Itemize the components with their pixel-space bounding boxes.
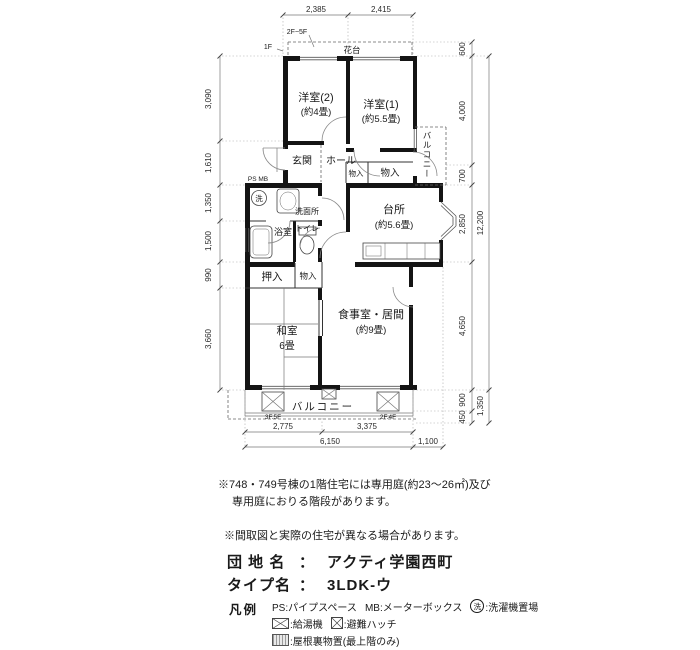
dim-bottom-2: 3,375 [357, 422, 378, 431]
room-label-balcony-main: バルコニー [292, 401, 354, 413]
attic-storage-legend-icon [272, 634, 289, 646]
type-separator: ： [299, 577, 315, 594]
dim-right-outer-1: 12,200 [476, 210, 485, 235]
legend-heater-label: :給湯機 [290, 616, 323, 631]
mark-hatch-left: 3F.5F [265, 414, 281, 421]
room-label-flower-stand: 花台 [343, 45, 360, 55]
bay-window [441, 202, 456, 240]
room-label-washroom: 洗面所 [295, 206, 319, 216]
room-area-kitchen: (約5.6畳) [375, 219, 414, 231]
escape-hatch-right-icon [377, 392, 399, 411]
dim-right-7: 450 [458, 410, 467, 424]
dim-right-1: 600 [458, 42, 467, 56]
type-name-value: 3LDK-ウ [327, 577, 392, 594]
room-label-closet-hall: 物入 [380, 167, 400, 179]
legend-hatch-label: :避難ハッチ [344, 616, 397, 631]
room-label-bathroom: 浴室 [274, 226, 292, 237]
dim-left-5: 990 [204, 268, 213, 282]
room-area-western2: (約4畳) [301, 106, 332, 118]
estate-name-value: アクティ学園西町 [327, 554, 453, 571]
room-area-western1: (約5.5畳) [362, 113, 401, 125]
legend-mb: MB:メーターボックス [365, 599, 462, 614]
dim-right-outer-2: 1,350 [476, 395, 485, 416]
room-label-balcony-side: バルコニー [421, 131, 433, 179]
room-area-japanese: 6畳 [279, 340, 295, 352]
dim-left-3: 1,350 [204, 192, 213, 213]
room-label-toilet: トイレ [295, 224, 319, 233]
type-name-row: タイプ名：3LDK-ウ [227, 574, 392, 595]
room-label-western2: 洋室(2) [298, 90, 333, 104]
escape-hatch-legend-icon [331, 617, 343, 629]
room-label-living: 食事室・居間 [338, 307, 404, 321]
legend-ps: PS:パイプスペース [272, 599, 357, 614]
estate-name-label: 団 地 名 [227, 551, 293, 572]
dim-right-6: 900 [458, 393, 467, 407]
dim-right-5: 4,650 [458, 315, 467, 336]
dim-left-2: 1,610 [204, 152, 213, 173]
dim-bottom-1: 2,775 [273, 422, 294, 431]
estate-separator: ： [299, 554, 315, 571]
dim-top-1: 2,385 [306, 5, 327, 14]
mark-floor2-5: 2F~5F [287, 29, 307, 36]
tatami-lines [250, 288, 318, 390]
dim-top-2: 2,415 [371, 5, 392, 14]
room-label-western1: 洋室(1) [363, 97, 398, 111]
note-disclaimer: ※間取図と実際の住宅が異なる場合があります。 [224, 527, 465, 543]
legend-laundry-label: :洗濯機置場 [485, 599, 538, 614]
dim-left-6: 3,660 [204, 328, 213, 349]
water-heater-icon [322, 389, 336, 399]
floorplan-page: 洗 洋室(2) (約4畳) 洋室(1) (約5.5畳) [0, 0, 700, 650]
laundry-space-icon: 洗 [252, 191, 267, 206]
dim-right-2: 4,000 [458, 100, 467, 121]
floorplan-drawing: 洗 洋室(2) (約4畳) 洋室(1) (約5.5畳) [0, 0, 700, 470]
estate-name-row: 団 地 名：アクティ学園西町 [227, 551, 453, 572]
room-label-oshiire: 押入 [262, 270, 283, 283]
water-heater-legend-icon [272, 618, 289, 629]
dim-right-3: 700 [458, 169, 467, 183]
laundry-space-label: 洗 [255, 193, 263, 203]
legend-title: 凡例 [229, 599, 258, 650]
room-area-living: (約9畳) [356, 324, 387, 336]
dim-bottom-4: 1,100 [418, 437, 439, 446]
type-name-label: タイプ名 [227, 574, 293, 595]
mark-hatch-right: 2F.4F [380, 414, 396, 421]
escape-hatch-left-icon [262, 392, 284, 411]
kitchen-counter [363, 243, 440, 259]
room-label-japanese: 和室 [277, 324, 298, 337]
room-label-kitchen: 台所 [383, 202, 405, 216]
note-line-1: ※748・749号棟の1階住宅には専用庭(約23～26㎡)及び [218, 479, 491, 491]
dim-left-4: 1,500 [204, 230, 213, 251]
dim-bottom-3: 6,150 [320, 437, 341, 446]
room-label-closet-small: 物入 [349, 168, 364, 178]
dim-right-4: 2,850 [458, 213, 467, 234]
room-label-hall: ホール [326, 155, 356, 167]
legend: 凡例 PS:パイプスペース MB:メーターボックス 洗 :洗濯機置場 :給湯機 [229, 599, 538, 650]
walls [245, 56, 443, 390]
legend-attic-label: :屋根裏物置(最上階のみ) [290, 633, 399, 648]
mark-floor1: 1F [264, 44, 272, 51]
note-private-garden: ※748・749号棟の1階住宅には専用庭(約23～26㎡)及び 専用庭におりる階… [218, 477, 491, 511]
dim-left-1: 3,090 [204, 88, 213, 109]
room-labels: 洋室(2) (約4畳) 洋室(1) (約5.5畳) 玄関 ホール 物入 物入 台… [248, 29, 413, 421]
bathtub [250, 226, 272, 258]
room-label-closet-lower: 物入 [299, 271, 317, 281]
note-line-2: 専用庭におりる階段があります。 [218, 496, 396, 508]
room-label-entrance: 玄関 [292, 154, 312, 167]
laundry-legend-icon: 洗 [470, 599, 484, 613]
mark-ps-mb: PS MB [248, 176, 268, 183]
